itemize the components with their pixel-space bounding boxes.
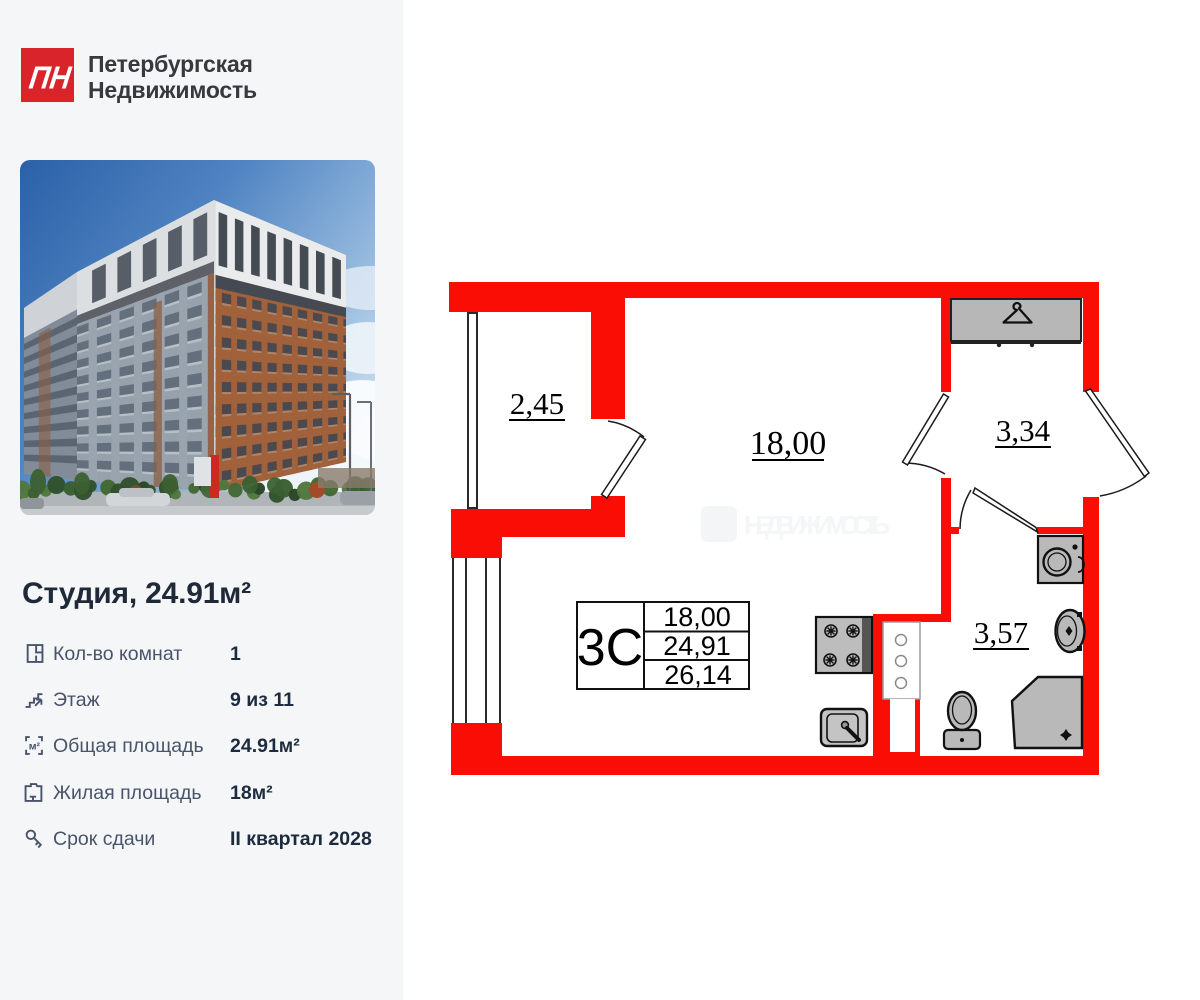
svg-text:НЕДВИЖИМОСТЬ: НЕДВИЖИМОСТЬ (744, 510, 890, 540)
svg-text:18,00: 18,00 (750, 425, 827, 462)
svg-text:18,00: 18,00 (663, 602, 731, 632)
svg-text:2,45: 2,45 (510, 386, 564, 421)
svg-text:24,91: 24,91 (663, 631, 731, 661)
svg-text:3С: 3С (577, 619, 643, 677)
svg-text:26,14: 26,14 (664, 660, 732, 690)
svg-text:3,34: 3,34 (996, 413, 1051, 448)
svg-text:3,57: 3,57 (974, 615, 1028, 650)
